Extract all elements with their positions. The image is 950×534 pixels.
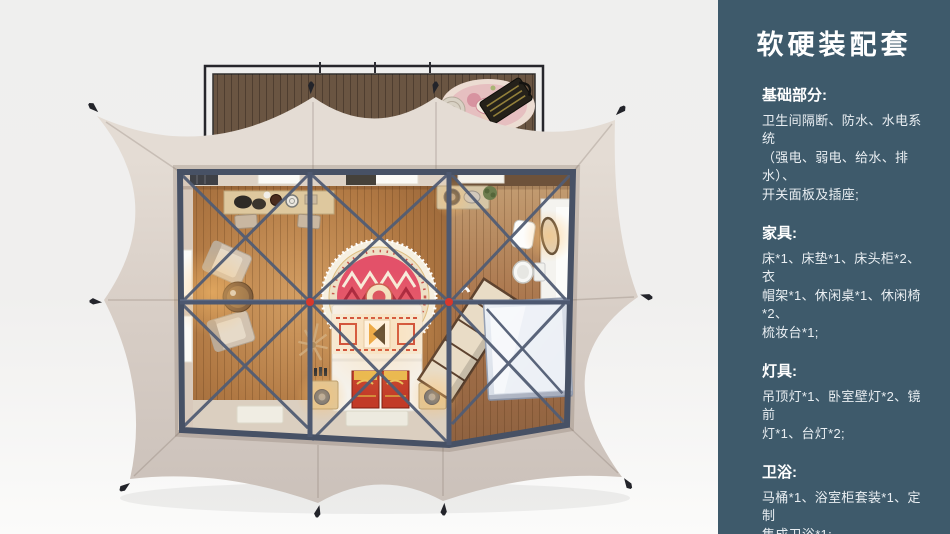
sidebar-title: 软硬装配套 (718, 0, 950, 59)
kettle (264, 192, 271, 199)
section-heading: 灯具: (762, 364, 932, 381)
section-line: 梳妆台*1; (762, 324, 932, 343)
ceiling-vent (346, 175, 376, 185)
section-line: 吊顶灯*1、卧室壁灯*2、镜前 (762, 388, 932, 425)
ceiling-vent (190, 174, 218, 185)
ground-shadow (120, 482, 630, 514)
section-line: 马桶*1、浴室柜套装*1、定制 (762, 489, 932, 526)
frame-joint (306, 298, 314, 306)
floor-mat (237, 406, 283, 423)
railing-posts (320, 62, 430, 73)
section-furniture: 家具: 床*1、床垫*1、床头柜*2、衣 帽架*1、休闲桌*1、休闲椅*2、 梳… (762, 226, 932, 342)
section-basics: 基础部分: 卫生间隔断、防水、水电系统 （强电、弱电、给水、排水）、 开关面板及… (762, 88, 932, 204)
section-heading: 卫浴: (762, 465, 932, 482)
interior-room (168, 170, 575, 445)
section-line: 集成卫浴*1; (762, 526, 932, 534)
section-bathroom: 卫浴: 马桶*1、浴室柜套装*1、定制 集成卫浴*1; (762, 465, 932, 534)
sidebar-sections: 基础部分: 卫生间隔断、防水、水电系统 （强电、弱电、给水、排水）、 开关面板及… (718, 88, 950, 534)
step-mat (346, 411, 408, 426)
section-line: 灯*1、台灯*2; (762, 425, 932, 444)
desk-chair (235, 214, 258, 229)
hat (234, 196, 252, 209)
section-line: 卫生间隔断、防水、水电系统 (762, 112, 932, 149)
plant (483, 186, 497, 200)
frame-joint (445, 298, 453, 306)
info-sidebar: 软硬装配套 基础部分: 卫生间隔断、防水、水电系统 （强电、弱电、给水、排水）、… (718, 0, 950, 534)
section-line: 床*1、床垫*1、床头柜*2、衣 (762, 250, 932, 287)
section-line: （强电、弱电、给水、排水）、 (762, 149, 932, 186)
section-lighting: 灯具: 吊顶灯*1、卧室壁灯*2、镜前 灯*1、台灯*2; (762, 364, 932, 443)
section-heading: 基础部分: (762, 88, 932, 105)
page: 软硬装配套 基础部分: 卫生间隔断、防水、水电系统 （强电、弱电、给水、排水）、… (0, 0, 950, 534)
tent-floorplan-render (0, 0, 718, 534)
hat (252, 199, 266, 210)
section-heading: 家具: (762, 226, 932, 243)
section-line: 开关面板及插座; (762, 186, 932, 205)
section-line: 帽架*1、休闲桌*1、休闲椅*2、 (762, 287, 932, 324)
